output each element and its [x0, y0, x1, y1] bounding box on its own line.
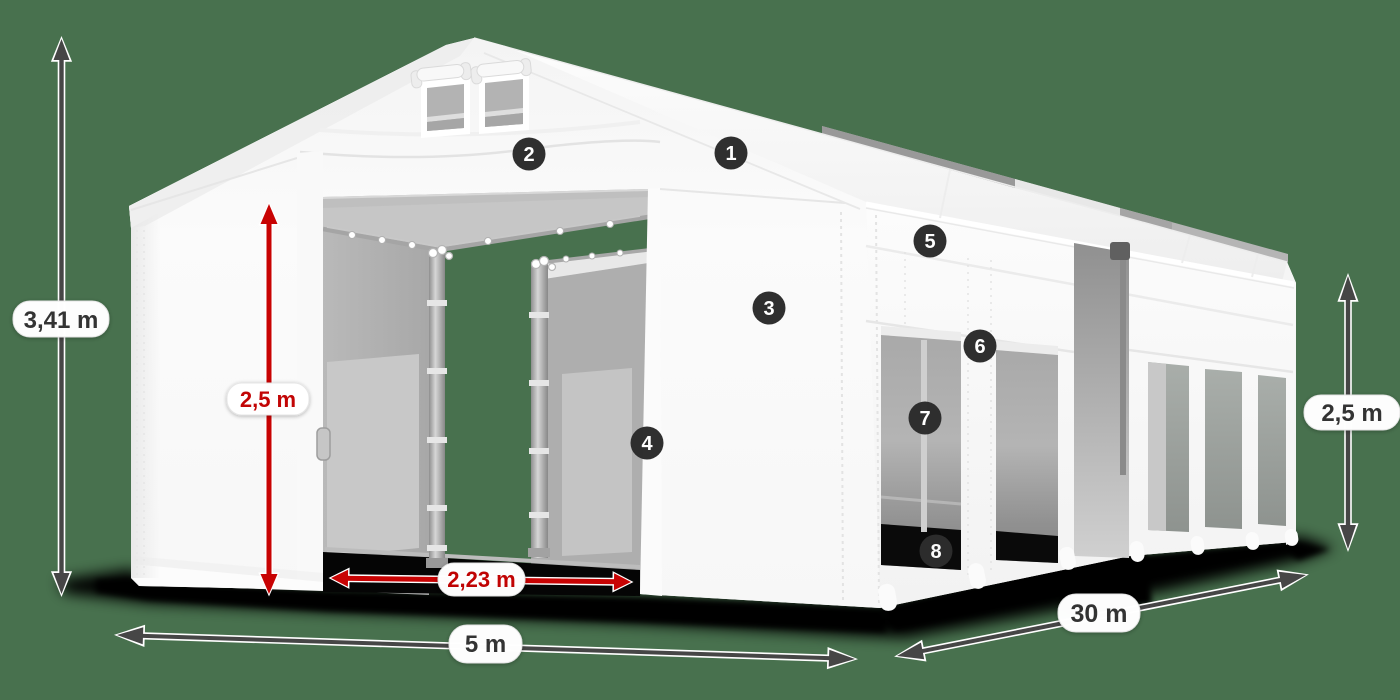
svg-text:5: 5	[924, 231, 935, 253]
svg-text:5 m: 5 m	[465, 631, 506, 658]
svg-text:2,5 m: 2,5 m	[240, 387, 296, 412]
svg-text:2,5 m: 2,5 m	[1321, 400, 1382, 427]
svg-text:7: 7	[919, 408, 930, 430]
svg-text:6: 6	[974, 336, 985, 358]
svg-text:2,23 m: 2,23 m	[447, 567, 516, 592]
svg-text:2: 2	[523, 144, 534, 166]
svg-text:1: 1	[725, 143, 736, 165]
svg-text:3: 3	[763, 298, 774, 320]
svg-text:30 m: 30 m	[1071, 600, 1128, 628]
svg-text:8: 8	[930, 541, 941, 563]
svg-text:4: 4	[641, 433, 653, 455]
svg-text:3,41 m: 3,41 m	[24, 307, 99, 334]
